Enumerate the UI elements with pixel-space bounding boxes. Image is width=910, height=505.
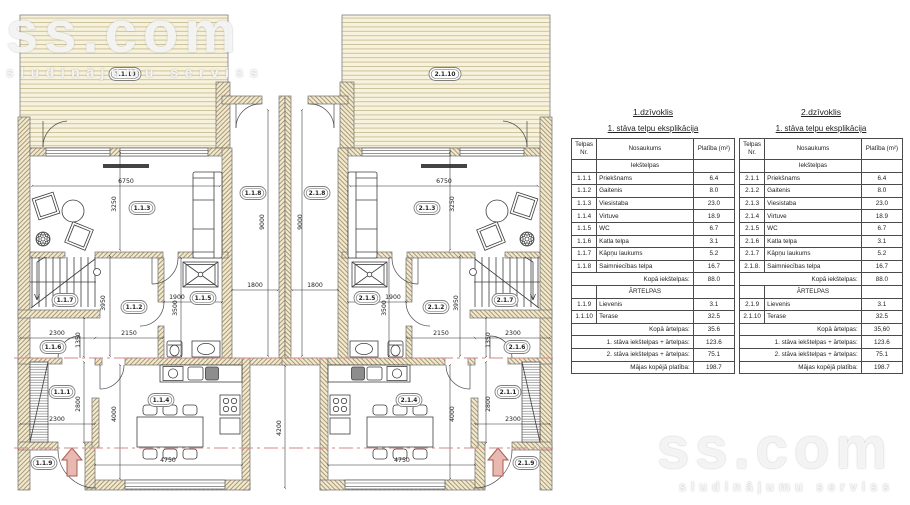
table-row: 1.1.2Gaitenis8.0 — [572, 185, 735, 198]
svg-text:1.1.6: 1.1.6 — [45, 345, 62, 351]
svg-text:2.1.2: 2.1.2 — [428, 305, 445, 311]
table-row: 2.1.7Kāpņu laukums5.2 — [740, 248, 903, 261]
svg-text:1.1.2: 1.1.2 — [126, 305, 143, 311]
table-cell: Virtuve — [765, 210, 862, 223]
watermark-brand: ss.com — [657, 420, 894, 478]
dimension-label: 1350 — [485, 332, 492, 348]
room-label: 1.1.3 — [129, 202, 155, 215]
table-cell: Mājas kopējā platība: — [572, 361, 694, 374]
dimension-label: 2800 — [485, 396, 492, 412]
room-label: 2.1.8 — [304, 187, 330, 200]
room-label: 1.1.4 — [148, 394, 174, 407]
svg-text:2.1.1: 2.1.1 — [500, 390, 517, 396]
dimension-label: 1350 — [75, 332, 82, 348]
table-cell: Kopā ārtelpas: — [572, 323, 694, 336]
dimension-label: 1900 — [169, 294, 185, 301]
table-row: Telpas Nr.NosaukumsPlatība (m²) — [740, 139, 903, 160]
table-cell: Gaitenis — [597, 185, 694, 198]
dimension-label: 4000 — [449, 406, 456, 422]
table-cell: 5.2 — [693, 248, 734, 261]
table-row: 1.1.3Viesistaba23.0 — [572, 197, 735, 210]
table-cell: 35.6 — [693, 323, 734, 336]
dimension-label: 1900 — [385, 294, 401, 301]
table-cell: 23.0 — [693, 197, 734, 210]
table-cell: 123.6 — [861, 336, 902, 349]
table-cell: 2.1.2 — [740, 185, 765, 198]
room-label: 1.1.9 — [31, 457, 57, 470]
table-row: 2.1.6Katla telpa3.1 — [740, 235, 903, 248]
table-row: Telpas Nr.NosaukumsPlatība (m²) — [572, 139, 735, 160]
dimension-label: 3950 — [453, 295, 460, 311]
table-cell: 1.1.4 — [572, 210, 597, 223]
dimension-label: 3950 — [100, 295, 107, 311]
table-row: 2.1.8.Saimniecības telpa16.7 — [740, 260, 903, 273]
table-row: 2.1.4Virtuve18.9 — [740, 210, 903, 223]
svg-text:2.1.9: 2.1.9 — [518, 461, 535, 467]
table-cell: 2.1.7 — [740, 248, 765, 261]
dimension-label: 2150 — [433, 330, 449, 337]
dimension-label: 1800 — [307, 282, 323, 289]
table-cell: Kāpņu laukums — [597, 248, 694, 261]
table-row: 2.1.3Viesistaba23.0 — [740, 197, 903, 210]
table-cell — [861, 285, 902, 298]
table-cell: 123.6 — [693, 336, 734, 349]
dimension-label: 3500 — [381, 300, 388, 316]
dimension-label: 6750 — [118, 178, 134, 185]
table-cell: 6.7 — [693, 222, 734, 235]
table-row: 2.1.10Terase32.5 — [740, 311, 903, 324]
table-row: 1.1.9Lievenis3.1 — [572, 298, 735, 311]
table-cell: Mājas kopējā platība: — [740, 361, 862, 374]
table-row: 1.1.6Katla telpa3.1 — [572, 235, 735, 248]
room-label: 2.1.6 — [504, 341, 530, 354]
table-cell: 1.1.1 — [572, 172, 597, 185]
table-cell: 1. stāva iekštelpas + ārtelpas: — [572, 336, 694, 349]
table-cell: Virtuve — [597, 210, 694, 223]
watermark-bottom-right: ss.com sludinājumu serviss — [657, 420, 894, 494]
table-cell: Terase — [597, 311, 694, 324]
table-cell: Viesistaba — [597, 197, 694, 210]
svg-text:1.1.4: 1.1.4 — [153, 398, 170, 404]
table-cell: Katla telpa — [765, 235, 862, 248]
table-cell: 2.1.4 — [740, 210, 765, 223]
svg-text:1.1.9: 1.1.9 — [36, 461, 53, 467]
table-cell: 1. stāva iekštelpas + ārtelpas: — [740, 336, 862, 349]
table-cell: 16.7 — [693, 260, 734, 273]
table-cell — [861, 160, 902, 173]
table-row: 1.1.8Saimniecības telpa16.7 — [572, 260, 735, 273]
table-cell: Kopā ārtelpas: — [740, 323, 862, 336]
table-row: Kopā iekštelpas:88.0 — [740, 273, 903, 286]
table-cell: ĀRTELPAS — [597, 285, 694, 298]
table-cell: Saimniecības telpa — [597, 260, 694, 273]
dimension-label: 2300 — [505, 416, 521, 423]
room-label: 2.1.7 — [492, 294, 518, 307]
table-cell: 3.1 — [693, 235, 734, 248]
table-cell: Priekšnams — [597, 172, 694, 185]
dimension-label: 2300 — [49, 330, 65, 337]
svg-text:2.1.6: 2.1.6 — [509, 345, 526, 351]
table-cell: Platība (m²) — [693, 139, 734, 160]
table-row: 1. stāva iekštelpas + ārtelpas:123.6 — [572, 336, 735, 349]
svg-text:2.1.10: 2.1.10 — [435, 72, 456, 78]
table-cell: 198.7 — [861, 361, 902, 374]
table-row: 1.1.5WC6.7 — [572, 222, 735, 235]
table-cell: 1.1.9 — [572, 298, 597, 311]
table-cell: 1.1.6 — [572, 235, 597, 248]
table-title: 1.dzīvoklis — [571, 107, 735, 117]
explication-tables: 1.dzīvoklis1. stāva telpu eksplikācijaTe… — [571, 107, 907, 374]
table-row: 2. stāva iekštelpas + ārtelpas:75.1 — [572, 348, 735, 361]
svg-text:2.1.4: 2.1.4 — [401, 398, 418, 404]
explication-table-2: 2.dzīvoklis1. stāva telpu eksplikācijaTe… — [739, 107, 903, 374]
table-cell: Platība (m²) — [861, 139, 902, 160]
svg-text:1.1.7: 1.1.7 — [57, 298, 74, 304]
dimension-label: 4750 — [394, 457, 410, 464]
table-subtitle: 1. stāva telpu eksplikācija — [571, 124, 735, 133]
table-cell: Viesistaba — [765, 197, 862, 210]
table-row: Iekštelpas — [740, 160, 903, 173]
table-subtitle: 1. stāva telpu eksplikācija — [739, 124, 903, 133]
dimension-label: 4000 — [111, 406, 118, 422]
svg-text:1.1.8: 1.1.8 — [245, 191, 262, 197]
table-cell: 18.9 — [861, 210, 902, 223]
dimension-label: 2800 — [75, 396, 82, 412]
table-cell: 2. stāva iekštelpas + ārtelpas: — [572, 348, 694, 361]
table-cell: Nosaukums — [597, 139, 694, 160]
table-row: 1.1.1Priekšnams6.4 — [572, 172, 735, 185]
table-row: Kopā ārtelpas:35,60 — [740, 323, 903, 336]
table-cell: 3.1 — [861, 235, 902, 248]
table-cell: Gaitenis — [765, 185, 862, 198]
dimension-label: 9000 — [297, 214, 304, 230]
floor-plan: 6750325039503500190023001350215028002300… — [0, 0, 568, 505]
table-cell: 1.1.10 — [572, 311, 597, 324]
table-cell: 2.1.6 — [740, 235, 765, 248]
explication-grid: Telpas Nr.NosaukumsPlatība (m²)Iekštelpa… — [739, 138, 903, 374]
table-cell: 198.7 — [693, 361, 734, 374]
table-cell: 88.0 — [693, 273, 734, 286]
svg-text:2.1.5: 2.1.5 — [359, 296, 376, 302]
table-cell: 2.1.1 — [740, 172, 765, 185]
watermark-tagline: sludinājumu serviss — [679, 480, 894, 494]
table-cell: 8.0 — [693, 185, 734, 198]
table-cell — [693, 160, 734, 173]
table-row: Kopā ārtelpas:35.6 — [572, 323, 735, 336]
dimension-label: 6750 — [436, 178, 452, 185]
room-label: 2.1.10 — [429, 68, 461, 81]
table-cell: Iekštelpas — [597, 160, 694, 173]
svg-text:2.1.3: 2.1.3 — [419, 206, 436, 212]
table-cell: Iekštelpas — [765, 160, 862, 173]
table-cell: WC — [765, 222, 862, 235]
table-cell: 1.1.3 — [572, 197, 597, 210]
room-label: 2.1.3 — [414, 202, 440, 215]
room-label: 1.1.10 — [109, 68, 141, 81]
table-cell — [572, 160, 597, 173]
table-cell — [740, 285, 765, 298]
table-cell: WC — [597, 222, 694, 235]
svg-text:2.1.7: 2.1.7 — [497, 298, 514, 304]
table-cell: 2.1.9 — [740, 298, 765, 311]
table-cell: Priekšnams — [765, 172, 862, 185]
table-cell: Lievenis — [765, 298, 862, 311]
table-cell: 1.1.7 — [572, 248, 597, 261]
table-cell: 3.1 — [693, 298, 734, 311]
svg-text:1.1.3: 1.1.3 — [134, 206, 151, 212]
table-row: 2.1.5WC6.7 — [740, 222, 903, 235]
table-row: 2.1.1Priekšnams6.4 — [740, 172, 903, 185]
dimension-label: 3250 — [449, 196, 456, 212]
dimension-label: 1800 — [247, 282, 263, 289]
room-label: 1.1.7 — [52, 294, 78, 307]
table-cell: 32.5 — [693, 311, 734, 324]
table-cell: 6.7 — [861, 222, 902, 235]
table-row: 2. stāva iekštelpas + ārtelpas:75.1 — [740, 348, 903, 361]
room-label: 2.1.5 — [354, 292, 380, 305]
table-row: 1.1.4Virtuve18.9 — [572, 210, 735, 223]
room-label: 2.1.4 — [396, 394, 422, 407]
table-cell: 1.1.5 — [572, 222, 597, 235]
svg-text:2.1.8: 2.1.8 — [309, 191, 326, 197]
dimension-label: 3250 — [111, 196, 118, 212]
table-cell: 75.1 — [861, 348, 902, 361]
table-cell: Kopā iekštelpas: — [740, 273, 862, 286]
table-row: 1.1.10Terase32.5 — [572, 311, 735, 324]
table-cell: ĀRTELPAS — [765, 285, 862, 298]
table-cell: 88.0 — [861, 273, 902, 286]
dimension-label: 2300 — [505, 330, 521, 337]
table-row: 2.1.2Gaitenis8.0 — [740, 185, 903, 198]
table-cell: Terase — [765, 311, 862, 324]
explication-table-1: 1.dzīvoklis1. stāva telpu eksplikācijaTe… — [571, 107, 735, 374]
table-row: 1.1.7Kāpņu laukums5.2 — [572, 248, 735, 261]
table-cell — [693, 285, 734, 298]
table-cell: 2.1.5 — [740, 222, 765, 235]
dimension-label: 3500 — [172, 300, 179, 316]
table-cell: 18.9 — [693, 210, 734, 223]
table-cell — [572, 285, 597, 298]
table-cell: 16.7 — [861, 260, 902, 273]
table-cell: 5.2 — [861, 248, 902, 261]
table-cell: Saimniecības telpa — [765, 260, 862, 273]
room-label: 1.1.8 — [240, 187, 266, 200]
table-row: 1. stāva iekštelpas + ārtelpas:123.6 — [740, 336, 903, 349]
table-cell: 2. stāva iekštelpas + ārtelpas: — [740, 348, 862, 361]
table-cell: Telpas Nr. — [572, 139, 597, 160]
table-cell — [740, 160, 765, 173]
table-cell: Telpas Nr. — [740, 139, 765, 160]
room-label: 1.1.5 — [190, 292, 216, 305]
room-label: 1.1.1 — [49, 386, 75, 399]
table-cell: 1.1.2 — [572, 185, 597, 198]
table-cell: 2.1.8. — [740, 260, 765, 273]
table-cell: 6.4 — [693, 172, 734, 185]
room-label: 1.1.6 — [40, 341, 66, 354]
table-cell: 6.4 — [861, 172, 902, 185]
dimension-label: 9000 — [259, 214, 266, 230]
table-title: 2.dzīvoklis — [739, 107, 903, 117]
table-cell: Kopā iekštelpas: — [572, 273, 694, 286]
table-row: Mājas kopējā platība:198.7 — [572, 361, 735, 374]
table-cell: 1.1.8 — [572, 260, 597, 273]
dimension-label: 2300 — [49, 416, 65, 423]
table-cell: 32.5 — [861, 311, 902, 324]
svg-text:1.1.1: 1.1.1 — [54, 390, 71, 396]
room-label: 2.1.1 — [495, 386, 521, 399]
table-cell: 75.1 — [693, 348, 734, 361]
dimension-label: 2150 — [121, 330, 137, 337]
table-cell: 3.1 — [861, 298, 902, 311]
explication-grid: Telpas Nr.NosaukumsPlatība (m²)Iekštelpa… — [571, 138, 735, 374]
room-label: 1.1.2 — [121, 301, 147, 314]
table-cell: 35,60 — [861, 323, 902, 336]
table-cell: Nosaukums — [765, 139, 862, 160]
table-row: Mājas kopējā platība:198.7 — [740, 361, 903, 374]
table-cell: Katla telpa — [597, 235, 694, 248]
table-cell: Kāpņu laukums — [765, 248, 862, 261]
table-row: Kopā iekštelpas:88.0 — [572, 273, 735, 286]
room-label: 2.1.2 — [423, 301, 449, 314]
svg-text:1.1.5: 1.1.5 — [195, 296, 212, 302]
table-row: ĀRTELPAS — [572, 285, 735, 298]
table-row: 2.1.9Lievenis3.1 — [740, 298, 903, 311]
table-cell: 23.0 — [861, 197, 902, 210]
svg-text:1.1.10: 1.1.10 — [115, 72, 136, 78]
table-row: ĀRTELPAS — [740, 285, 903, 298]
table-cell: 2.1.10 — [740, 311, 765, 324]
dimension-label: 4750 — [160, 457, 176, 464]
room-label: 2.1.9 — [513, 457, 539, 470]
dimension-label: 4200 — [276, 420, 283, 436]
table-cell: Lievenis — [597, 298, 694, 311]
table-row: Iekštelpas — [572, 160, 735, 173]
table-cell: 2.1.3 — [740, 197, 765, 210]
table-cell: 8.0 — [861, 185, 902, 198]
